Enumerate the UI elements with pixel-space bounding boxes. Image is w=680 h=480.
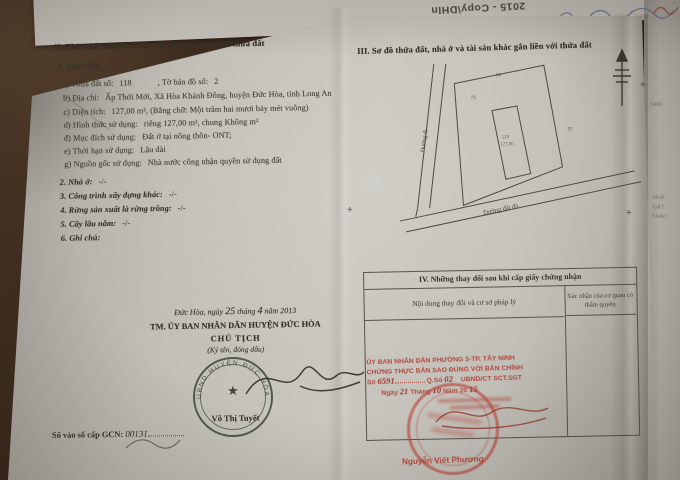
notary-no-label: Số bbox=[367, 379, 376, 386]
plot-area-label: 127,00 bbox=[500, 142, 514, 147]
photographed-land-certificate: 2015 - Copy\DHIn NAM NHA ĐẤT KHÁC II. Th… bbox=[0, 0, 680, 480]
field-value: Lâu dài bbox=[140, 145, 166, 154]
field-use-term: e) Thời hạn sử dụng:Lâu dài bbox=[64, 145, 166, 157]
item-label: 5. Cây lâu năm: bbox=[60, 219, 116, 229]
field-label: e) Thời hạn sử dụng: bbox=[64, 145, 134, 155]
field-use-form: d) Hình thức sử dụng:riêng 127,00 m², ch… bbox=[64, 117, 259, 131]
register-mark-icon: + bbox=[640, 80, 646, 91]
edge-fragment: NAM bbox=[650, 102, 663, 109]
field-use-origin: g) Nguồn gốc sử dụng:Nhà nước công nhận … bbox=[64, 156, 282, 170]
item-label: 3. Công trình xây dựng khác: bbox=[60, 190, 163, 201]
edge-fragment: ĐẤT bbox=[653, 205, 664, 212]
field-label: c) Diện tích: bbox=[63, 107, 105, 117]
red-corner-scribble bbox=[652, 1, 680, 17]
field-label: g) Nguồn gốc sử dụng: bbox=[64, 158, 142, 168]
register-mark-icon: + bbox=[347, 205, 353, 216]
dotted-line bbox=[148, 427, 184, 437]
edge-fragment: KHÁC bbox=[652, 214, 668, 221]
registry-label: Số vào sổ cấp GCN: bbox=[52, 430, 123, 440]
plot-number-label: 118 bbox=[502, 135, 510, 140]
section-ii-block: II. Thửa đất, nhà ở và tài sản khác gắn … bbox=[52, 34, 348, 252]
field-address: b) Địa chỉ:Ấp Thới Mới, Xã Hòa Khánh Đôn… bbox=[63, 89, 332, 104]
item-perennial-trees: 5. Cây lâu năm:-/- bbox=[60, 219, 130, 230]
item-value: -/- bbox=[169, 190, 177, 199]
field-value: Đất ở tại nông thôn- ONT; bbox=[142, 131, 232, 142]
road-bottom-line bbox=[405, 182, 642, 232]
field-area: c) Diện tích:127,00 m², (Bằng chữ: Một t… bbox=[63, 103, 308, 118]
item-value: -/- bbox=[122, 219, 130, 228]
notary-date-text: Ngày bbox=[381, 389, 398, 397]
field-label: d) Hình thức sử dụng: bbox=[64, 119, 138, 129]
dotted-leader bbox=[395, 376, 425, 384]
issuing-authority: TM. ỦY BAN NHÂN DÂN HUYỆN ĐỨC HÒA bbox=[118, 319, 353, 332]
date-text: tháng bbox=[237, 307, 255, 316]
road-bottom-line bbox=[399, 171, 636, 221]
section-ii-heading: II. Thửa đất, nhà ở và tài sản khác gắn … bbox=[54, 38, 265, 52]
registry-value-handwritten: 00131 bbox=[125, 429, 148, 439]
plot-sketch: 90 73 57 118 127,00 Đường đi Đường đất đ… bbox=[388, 55, 645, 240]
item-forest: 4. Rừng sản xuất là rừng trồng:-/- bbox=[60, 203, 186, 215]
handwritten-month: 4 bbox=[257, 306, 262, 317]
field-label: , Tờ bản đồ số: bbox=[158, 77, 209, 87]
item-label: 4. Rừng sản xuất là rừng trồng: bbox=[60, 204, 172, 215]
road-left-label: Đường đi bbox=[420, 129, 429, 153]
registry-number-line: Số vào sổ cấp GCN: 00131 bbox=[52, 427, 184, 440]
notary-signature bbox=[432, 396, 552, 432]
field-value: Ấp Thới Mới, Xã Hòa Khánh Đông, huyện Đứ… bbox=[105, 89, 332, 102]
item-label: 2. Nhà ở: bbox=[60, 177, 93, 187]
column-header-content: Nội dung thay đổi và cơ sở pháp lý bbox=[364, 286, 564, 321]
issuing-signature-block: Đức Hòa, ngày 25 tháng 4 năm 2013 TM. ỦY… bbox=[118, 304, 354, 356]
handwritten-day: 25 bbox=[225, 306, 235, 317]
road-bottom-label: Đường đất đỏ bbox=[483, 203, 520, 217]
chairman-signature bbox=[240, 352, 368, 410]
road-left-line bbox=[426, 64, 450, 208]
handwritten-doc-number: 6591 bbox=[377, 376, 394, 387]
item-value: -/- bbox=[98, 177, 106, 186]
column-header-confirmation: Xác nhận của cơ quan có thẩm quyền bbox=[564, 285, 636, 316]
field-label: a) Thửa đất số: bbox=[63, 79, 114, 89]
field-value: Nhà nước công nhận quyền sử dụng đất bbox=[148, 156, 282, 168]
item-notes: 6. Ghi chú: bbox=[61, 233, 107, 244]
date-text: Đức Hòa, ngày bbox=[174, 307, 223, 317]
field-value: riêng 127,00 m², chung Không m² bbox=[144, 117, 259, 128]
field-use-purpose: đ) Mục đích sử dụng:Đất ở tại nông thôn-… bbox=[64, 131, 232, 144]
dimension-label-right: 57 bbox=[568, 128, 574, 133]
field-label: b) Địa chỉ: bbox=[63, 93, 99, 103]
item-label: 6. Ghi chú: bbox=[61, 233, 101, 243]
notary-ref: UBND/CT SCT.SGT bbox=[461, 375, 522, 384]
dimension-label-top: 90 bbox=[496, 73, 502, 78]
road-end-tick bbox=[416, 209, 418, 217]
handwritten-day: 21 bbox=[400, 386, 409, 396]
item-value: -/- bbox=[178, 203, 186, 212]
item-house: 2. Nhà ở:-/- bbox=[60, 177, 107, 188]
field-parcel-number: a) Thửa đất số:118, Tờ bản đồ số:2 bbox=[63, 77, 219, 90]
field-label: đ) Mục đích sử dụng: bbox=[64, 132, 137, 142]
dimension-label-left: 73 bbox=[471, 96, 477, 101]
field-value: 2 bbox=[214, 77, 218, 86]
date-text: năm 2013 bbox=[264, 306, 296, 316]
field-value: 127,00 m², (Bằng chữ: Một trăm hai mươi … bbox=[112, 103, 309, 116]
field-value: 118 bbox=[119, 78, 131, 87]
edge-fragment: NHA bbox=[653, 195, 665, 202]
subsection-1-heading: 1. Thửa đất: bbox=[57, 61, 100, 72]
item-other-construction: 3. Công trình xây dựng khác:-/- bbox=[60, 190, 177, 202]
